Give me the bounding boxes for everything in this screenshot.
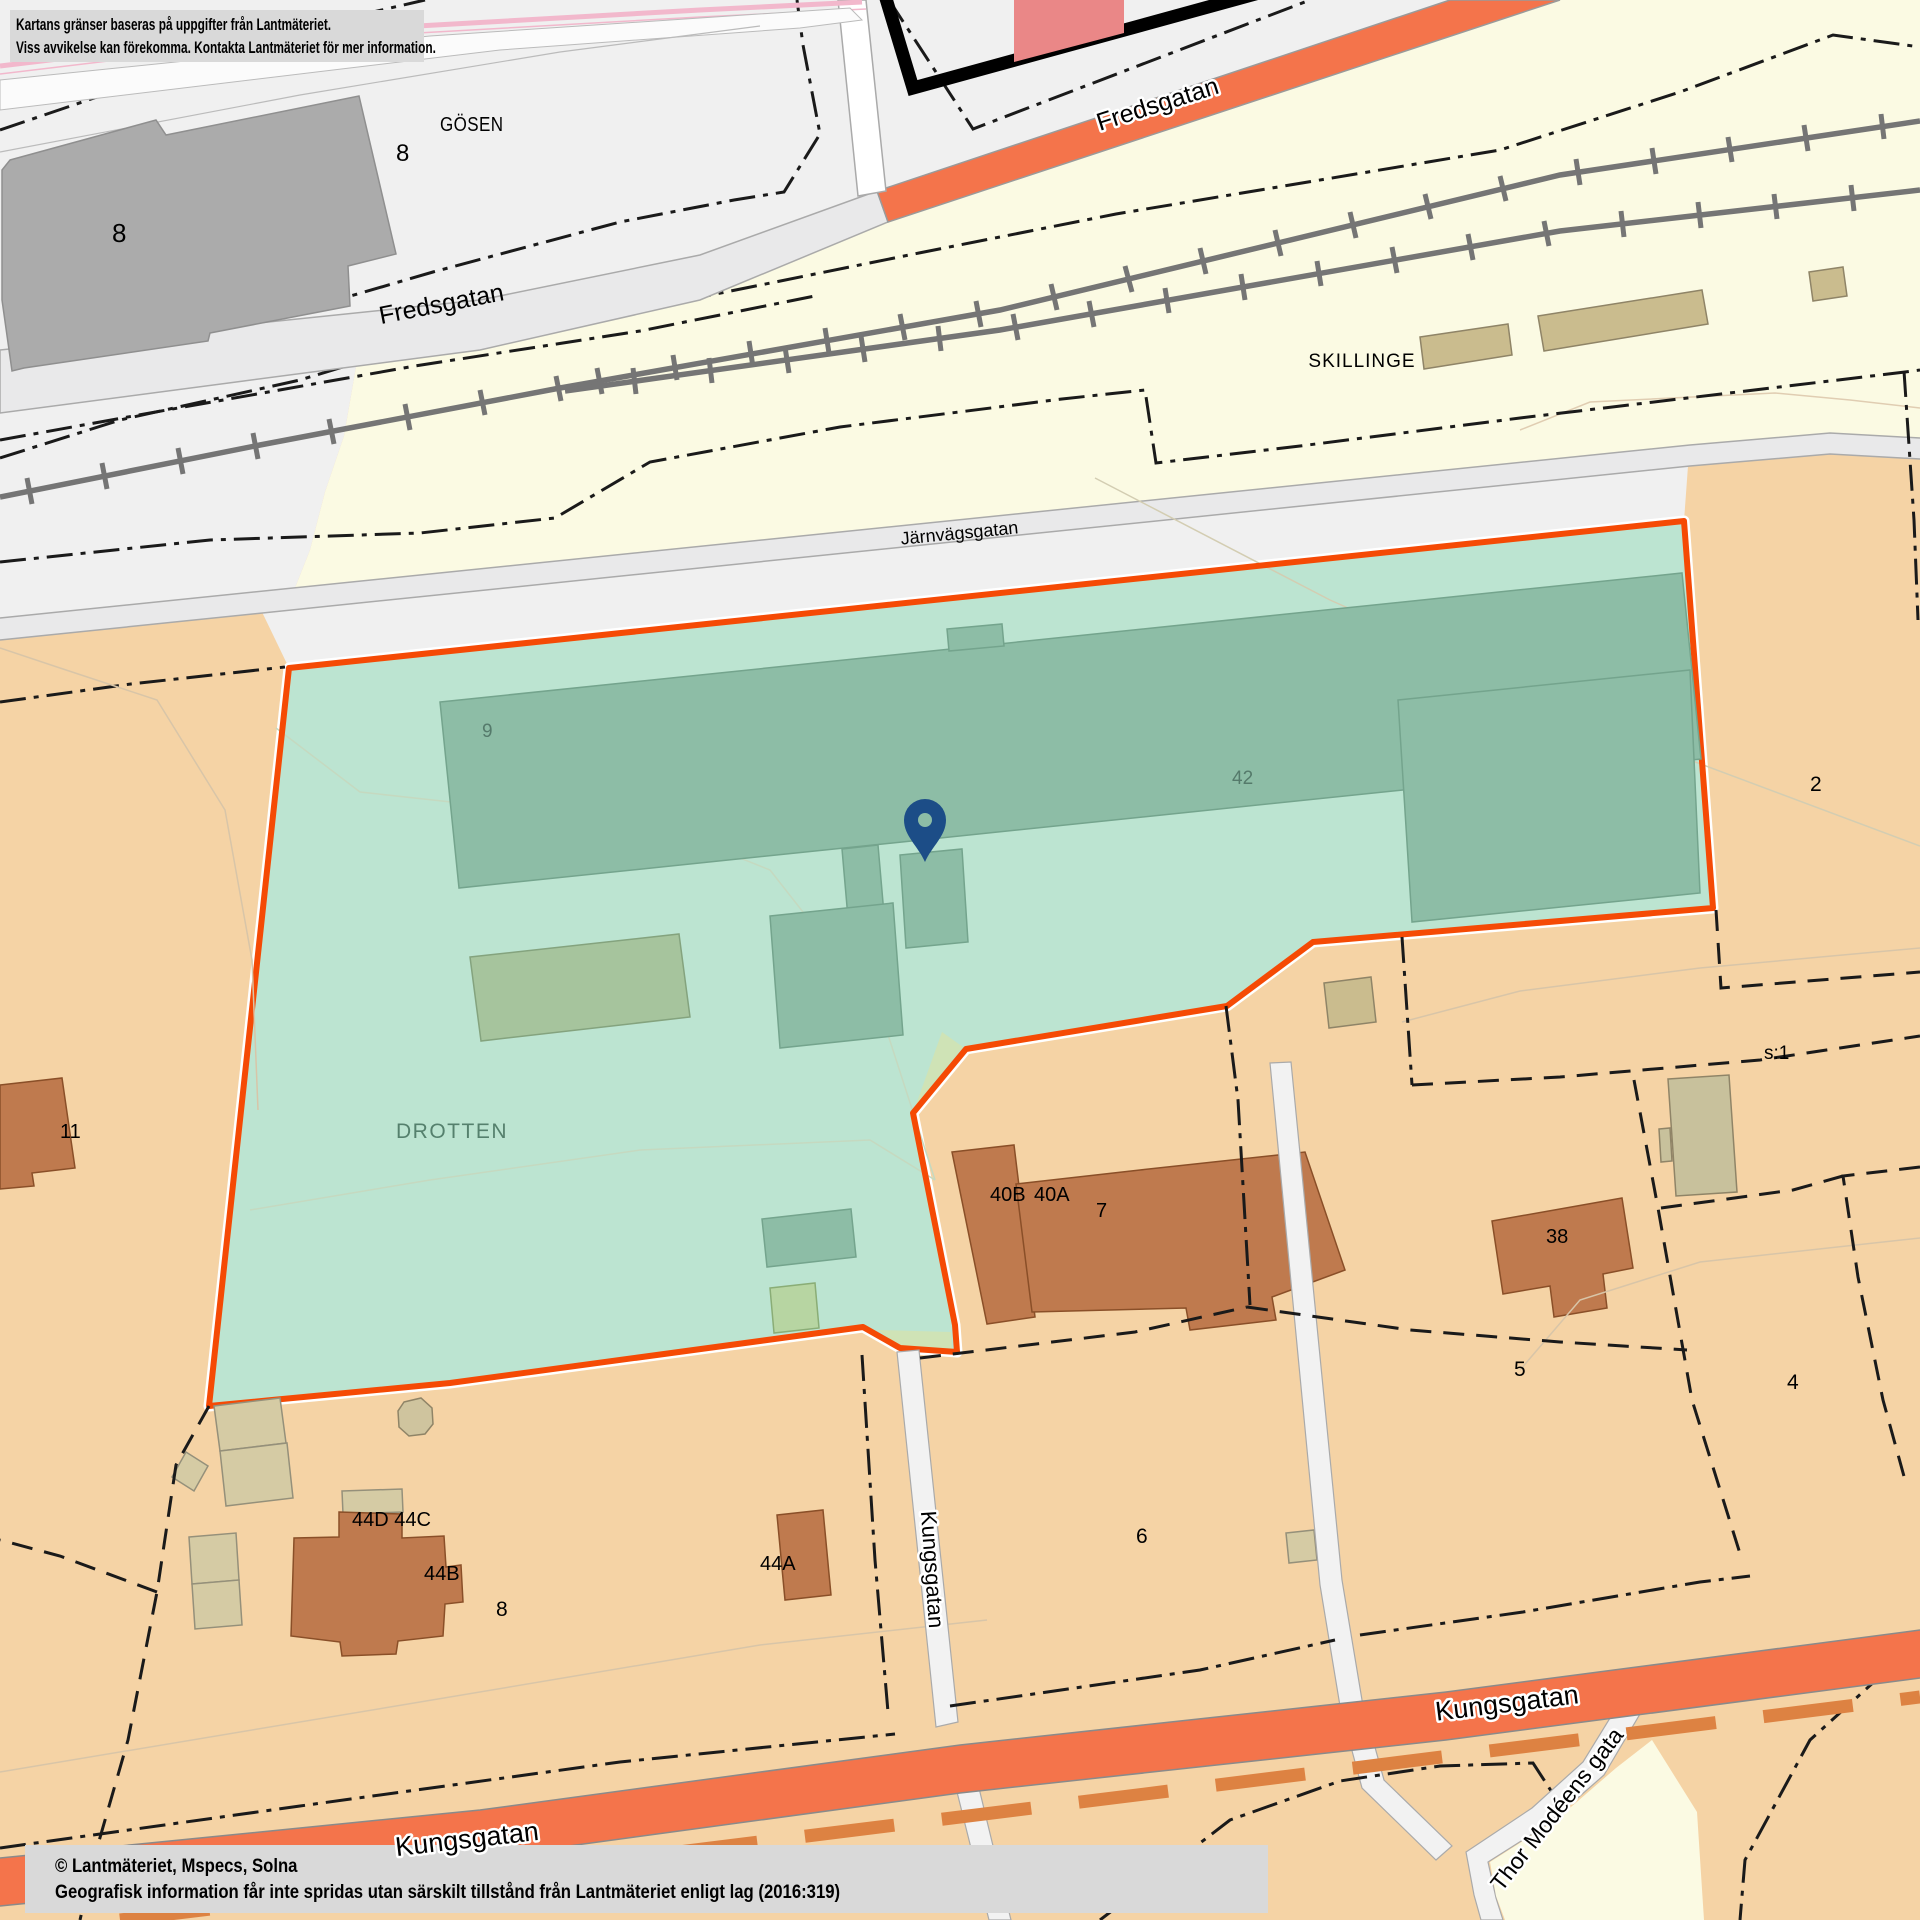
svg-text:44B: 44B — [424, 1563, 460, 1585]
svg-text:44D 44C: 44D 44C — [352, 1509, 431, 1531]
svg-text:8: 8 — [496, 1598, 508, 1621]
svg-text:GÖSEN: GÖSEN — [440, 113, 503, 136]
svg-text:4: 4 — [1787, 1371, 1799, 1394]
svg-text:Kartans gränser baseras på upp: Kartans gränser baseras på uppgifter frå… — [16, 16, 331, 35]
svg-text:40A: 40A — [1034, 1184, 1070, 1206]
svg-text:5: 5 — [1514, 1358, 1526, 1381]
svg-text:SKILLINGE: SKILLINGE — [1308, 351, 1415, 372]
svg-text:2: 2 — [1810, 773, 1822, 796]
svg-text:38: 38 — [1546, 1226, 1568, 1248]
svg-text:© Lantmäteriet, Mspecs, Solna: © Lantmäteriet, Mspecs, Solna — [55, 1855, 298, 1876]
svg-text:9: 9 — [482, 721, 493, 742]
svg-text:11: 11 — [60, 1121, 81, 1143]
svg-text:6: 6 — [1136, 1525, 1148, 1548]
svg-text:s:1: s:1 — [1764, 1043, 1789, 1064]
svg-text:Geografisk information får int: Geografisk information får inte spridas … — [55, 1881, 840, 1902]
svg-text:44A: 44A — [760, 1553, 796, 1575]
svg-text:8: 8 — [112, 218, 126, 248]
svg-text:8: 8 — [396, 140, 409, 167]
svg-text:42: 42 — [1232, 768, 1253, 789]
svg-text:Viss avvikelse kan förekomma.: Viss avvikelse kan förekomma. Kontakta L… — [16, 39, 436, 58]
svg-text:7: 7 — [1096, 1200, 1107, 1222]
svg-text:DROTTEN: DROTTEN — [396, 1120, 508, 1143]
svg-text:40B: 40B — [990, 1184, 1026, 1206]
